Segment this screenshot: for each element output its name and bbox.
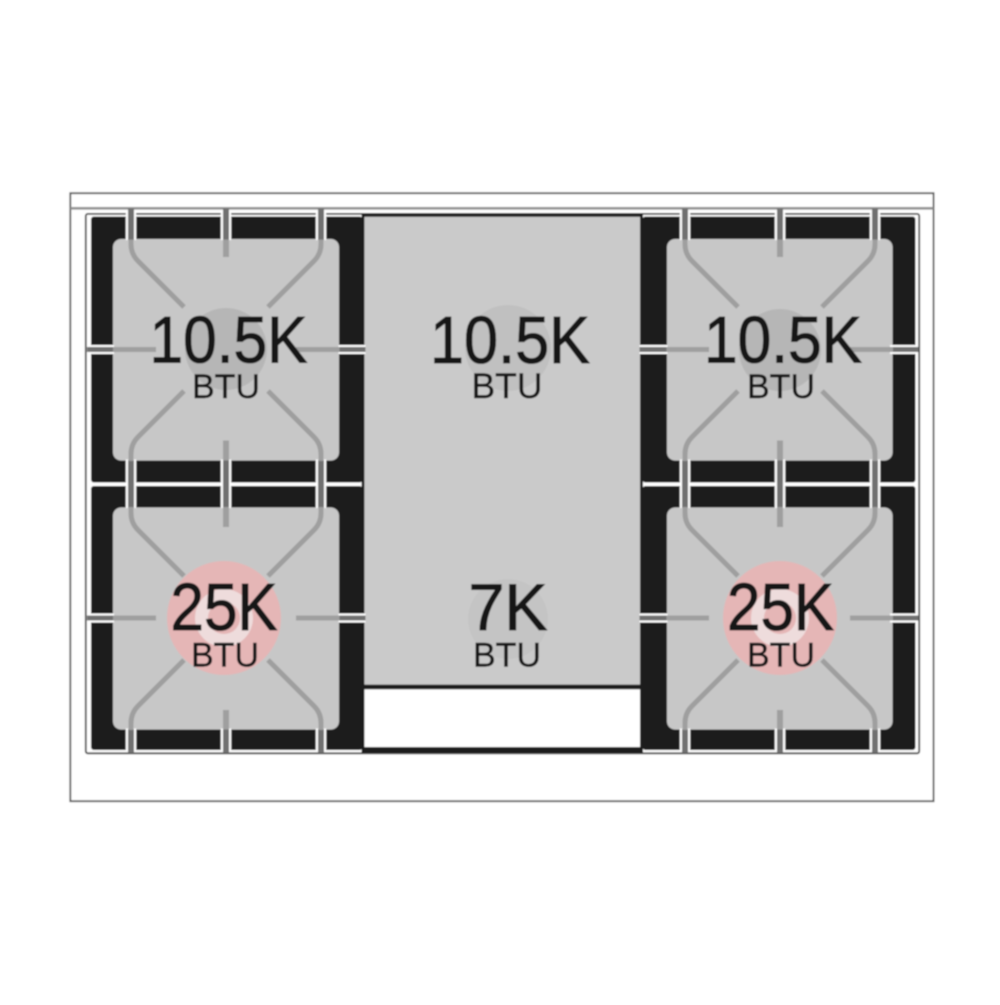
svg-text:BTU: BTU xyxy=(472,366,543,406)
svg-text:10.5K: 10.5K xyxy=(150,303,308,377)
svg-text:BTU: BTU xyxy=(473,637,541,675)
svg-text:25K: 25K xyxy=(171,571,278,645)
svg-text:BTU: BTU xyxy=(747,368,815,406)
svg-text:25K: 25K xyxy=(727,571,834,645)
svg-text:BTU: BTU xyxy=(192,368,260,406)
svg-text:10.5K: 10.5K xyxy=(704,303,862,377)
svg-text:BTU: BTU xyxy=(191,637,259,675)
svg-text:7K: 7K xyxy=(469,570,548,644)
svg-text:BTU: BTU xyxy=(747,637,815,675)
